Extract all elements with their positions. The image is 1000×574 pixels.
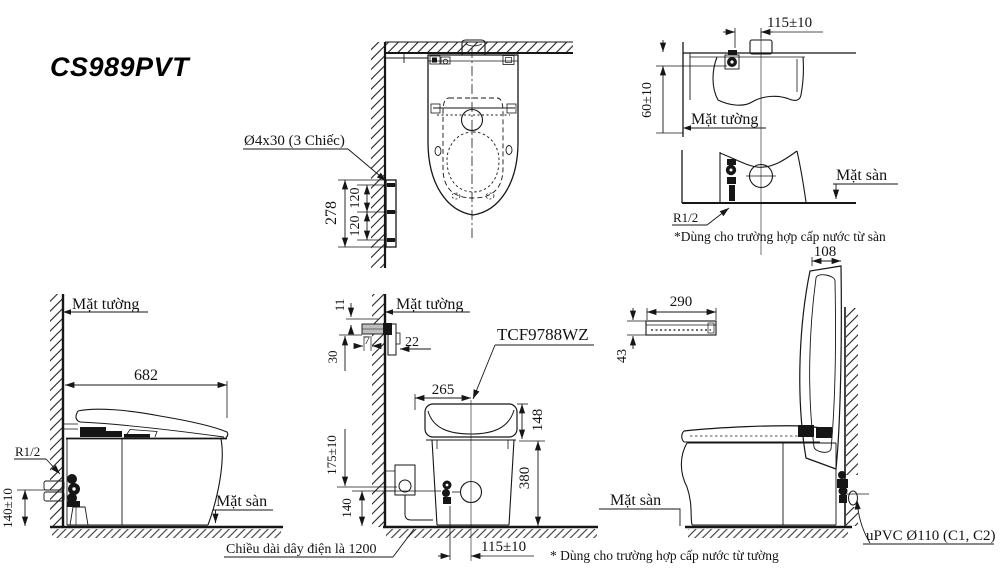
floor-hatch [386,529,597,538]
dim-120-upper-label: 120 [348,188,363,209]
screw-label: Ø4x30 (3 Chiếc) [244,133,345,149]
dim-22-label: 22 [405,335,419,350]
floor-surface-label: Mặt sàn [216,493,267,510]
dim-148 [517,404,528,439]
mounting-plate [386,180,396,247]
leader-arrow [683,125,691,131]
dim-140-label: 140 [339,498,354,518]
dim-380-label: 380 [517,467,533,490]
floor-leader [599,509,680,526]
floor-hatch [52,529,281,538]
wall-surface-label: Mặt tường [72,296,139,313]
open-lid-view: 108 290 43 Mặt sàn uPVC Ø110 (C1, C2) [599,244,995,544]
dim-60-label: 60±10 [640,82,655,118]
dim-30 [339,335,362,371]
dim-7-label: 7 [364,333,370,347]
dim-11-label: 11 [332,299,347,312]
dim-115-label: 115±10 [481,539,526,555]
rear-view: Mặt tường 11 7 22 30 TCF9788WZ 265 148 3… [224,294,779,563]
remote-control [646,321,716,335]
dim-115 [723,28,823,48]
floor-hatch [688,529,848,538]
top-plan-view: Ø4x30 (3 Chiếc) 278 120 120 [243,40,573,268]
screw-callout [243,149,386,181]
leader-arrow [385,309,393,315]
floor-surface-label: Mặt sàn [836,167,887,184]
drain-pipe-label: uPVC Ø110 (C1, C2) [866,528,995,544]
thread-label: R1/2 [15,444,40,459]
toilet-top-outline [386,40,518,240]
dim-290-label: 290 [670,294,693,310]
model-title: CS989PVT [50,52,191,82]
drain-pipe [837,471,869,505]
side-view: Mặt tường 682 R1/2 140±10 Mặt sàn [0,294,283,538]
wall-surface-label: Mặt tường [396,296,463,313]
dim-115-label: 115±10 [767,15,812,31]
power-cord [405,495,433,520]
dim-108-label: 108 [814,244,837,260]
dim-682 [65,381,227,418]
dim-30-label: 30 [325,351,340,364]
toilet-side-outline [66,409,228,525]
thread-label: R1/2 [673,210,698,225]
dim-278-label: 278 [323,201,340,225]
dim-682-label: 682 [134,367,158,384]
dim-140 [352,491,441,526]
dim-175 [337,429,397,487]
dim-148-label: 148 [530,409,546,432]
dim-140 [17,490,48,526]
drawing-page: { "title": "CS989PVT", "top_view": { "sc… [0,0,1000,574]
dim-265-label: 265 [432,382,455,398]
supply-box [385,465,433,520]
cord-length-note: Chiều dài dây điện là 1200 [226,542,376,557]
tank-body [432,440,514,525]
tank-profile [713,57,803,105]
open-lid [800,266,842,469]
wall-hatch [846,308,858,475]
wall-surface-label: Mặt tường [691,111,758,128]
floor-surface-label: Mặt sàn [610,492,661,509]
floor-inlet-fitting [726,159,736,201]
floor-supply-note: *Dùng cho trường hợp cấp nước từ sàn [674,229,886,244]
washlet-unit-label: TCF9788WZ [497,325,589,344]
dim-140-label: 140±10 [0,488,15,528]
dim-43-label: 43 [615,349,630,363]
dim-175-label: 175±10 [324,435,339,475]
inlet-valve [442,481,452,505]
unit-callout [473,345,594,399]
floor-supply-view: Mặt sàn R1/2 *Dùng cho trường hợp cấp nư… [672,150,898,244]
cad-drawing-canvas: CS989PVT [0,0,1000,574]
dim-120-lower-label: 120 [348,216,363,237]
wall-supply-note: * Dùng cho trường hợp cấp nước từ tường [550,548,779,563]
